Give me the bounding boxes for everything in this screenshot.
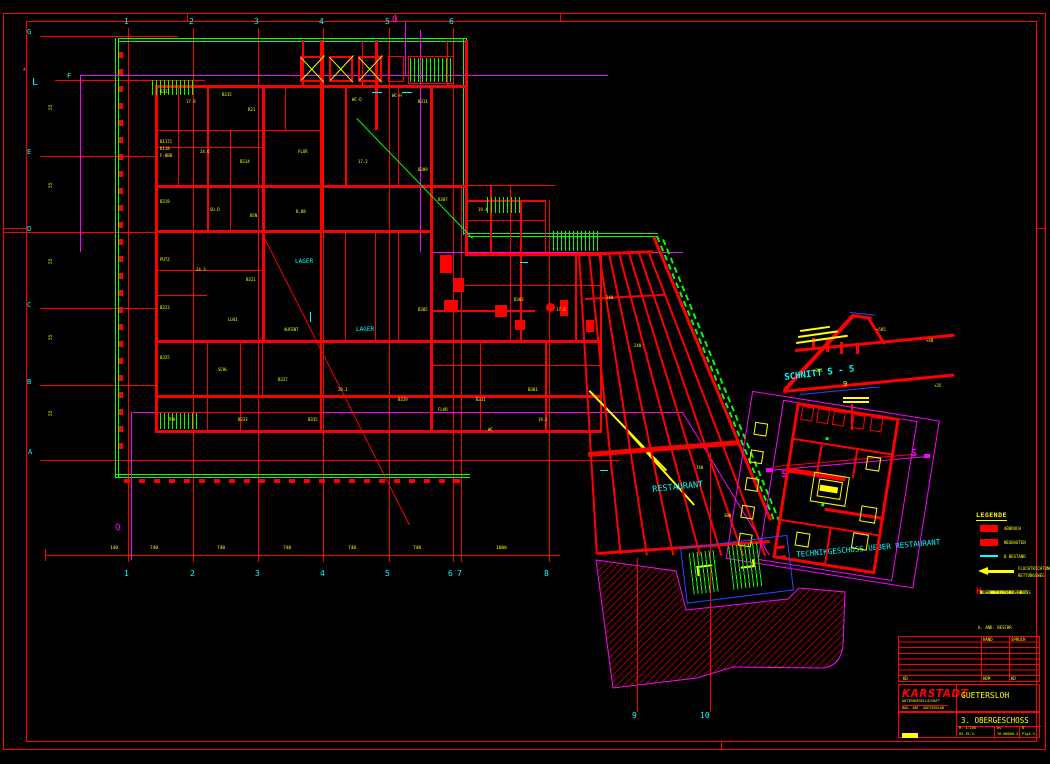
wall-segment bbox=[40, 385, 155, 386]
outline-box bbox=[388, 56, 404, 82]
boundary-tick bbox=[119, 273, 123, 279]
outline-box bbox=[753, 422, 768, 437]
drawing-label: B335 bbox=[308, 418, 318, 422]
boundary-tick bbox=[119, 103, 123, 109]
wall-segment bbox=[155, 85, 465, 88]
wall-segment bbox=[285, 85, 286, 130]
wall-segment bbox=[207, 85, 209, 230]
drawing-scale: M. 1:100 bbox=[959, 727, 976, 731]
wall-segment bbox=[193, 548, 194, 562]
boundary-tick bbox=[334, 479, 340, 483]
drawing-label: C bbox=[27, 302, 31, 309]
outline-box bbox=[865, 456, 881, 472]
boundary-tick bbox=[169, 479, 175, 483]
drawing-label: B301 bbox=[528, 388, 538, 392]
drawing-label: B323 bbox=[160, 306, 170, 310]
wall-segment bbox=[453, 548, 454, 562]
drawing-label: LAGER bbox=[295, 259, 313, 265]
boundary-tick bbox=[349, 479, 355, 483]
wall-segment bbox=[128, 28, 129, 555]
wall-segment bbox=[465, 220, 545, 221]
wall-segment bbox=[40, 36, 178, 37]
boundary-tick bbox=[304, 479, 310, 483]
drawing-label: WC bbox=[488, 428, 493, 432]
wall-segment bbox=[187, 13, 188, 21]
drawing-label: D bbox=[27, 226, 31, 233]
drawing-label: 2 bbox=[189, 18, 194, 26]
drawing-label: TRH bbox=[168, 418, 175, 422]
drawing-label: ▲ bbox=[23, 67, 26, 72]
drawing-label: 1000 bbox=[496, 547, 507, 552]
wall-segment bbox=[118, 41, 466, 42]
boundary-tick bbox=[364, 479, 370, 483]
wall-segment bbox=[45, 555, 560, 556]
wall-segment bbox=[465, 185, 555, 186]
drawing-label: 740 bbox=[413, 547, 421, 552]
rev-b1: KD bbox=[903, 677, 908, 681]
drawing-label: G bbox=[27, 29, 31, 36]
boundary-tick bbox=[424, 479, 430, 483]
drawing-label: FLUR bbox=[298, 150, 308, 154]
boundary-tick bbox=[119, 69, 123, 75]
wall-segment bbox=[821, 503, 824, 506]
drawing-no-1: 03-76-3. bbox=[959, 733, 976, 737]
boundary-tick bbox=[119, 52, 123, 58]
drawing-label: 19.4 bbox=[478, 208, 488, 212]
wall-segment bbox=[389, 28, 390, 555]
wall-segment bbox=[262, 340, 263, 395]
boundary-tick bbox=[119, 392, 123, 398]
wall-segment bbox=[155, 340, 602, 343]
drawing-label: FLUR bbox=[438, 408, 448, 412]
project-title: 3. OBERGESCHOSS bbox=[961, 716, 1029, 725]
wall-segment bbox=[389, 548, 390, 562]
drawing-label: SU.D bbox=[210, 208, 220, 212]
drawing-label: 3 bbox=[255, 570, 260, 578]
boundary-tick bbox=[214, 479, 220, 483]
drawing-label: BSN bbox=[250, 214, 257, 218]
outline-box bbox=[852, 414, 866, 430]
rev-b3: KD bbox=[1011, 677, 1016, 681]
boundary-tick bbox=[119, 307, 123, 313]
wall-segment bbox=[258, 548, 259, 562]
drawing-label: 740 bbox=[150, 547, 158, 552]
wall-segment bbox=[721, 742, 722, 750]
drawing-label: WC-D bbox=[352, 98, 362, 102]
wall-segment bbox=[465, 40, 468, 255]
boundary-tick bbox=[119, 358, 123, 364]
revision-table: HAND SPRUCH KD HDM KD bbox=[898, 636, 1040, 682]
stair-hatch bbox=[689, 550, 720, 595]
wall-segment bbox=[155, 130, 320, 131]
boundary-tick bbox=[379, 479, 385, 483]
legend-swatch-label: NEUBAUTEN bbox=[1004, 540, 1026, 545]
drawing-label: 140 bbox=[110, 547, 118, 552]
wall-segment bbox=[323, 28, 324, 555]
drawing-no-2: 76-00000-3. bbox=[997, 733, 1020, 737]
drawing-label: B319 bbox=[160, 200, 170, 204]
wall-segment bbox=[586, 320, 594, 332]
legend-swatch-row: ABBRUCH bbox=[976, 523, 1048, 535]
wall-segment bbox=[520, 262, 528, 263]
cad-drawing-canvas[interactable]: 123456Q12345678Q910GFEDCBAL▲140740740740… bbox=[0, 0, 1050, 764]
wall-segment bbox=[454, 278, 464, 292]
drawing-label: 24.3 bbox=[196, 268, 206, 272]
boundary-tick bbox=[119, 426, 123, 432]
drawing-label: B329 bbox=[398, 398, 408, 402]
boundary-tick bbox=[119, 239, 123, 245]
drawing-label: 3 bbox=[254, 18, 259, 26]
wall-segment bbox=[398, 230, 399, 342]
wall-segment bbox=[545, 200, 546, 255]
boundary-tick bbox=[119, 120, 123, 126]
project-city: GUETERSLOH bbox=[961, 691, 1009, 700]
drawing-label: 19.2 bbox=[538, 418, 548, 422]
drawing-label: B307 bbox=[438, 198, 448, 202]
drawing-label: B314 bbox=[240, 160, 250, 164]
wall-segment bbox=[430, 85, 433, 430]
drawing-label: 740 bbox=[217, 547, 225, 552]
wall-segment bbox=[80, 75, 81, 252]
legend-swatch-row: B BESTAND bbox=[976, 551, 1048, 563]
wall-segment bbox=[1037, 228, 1046, 229]
drawing-label: B.08 bbox=[296, 210, 306, 214]
drawing-label: B325 bbox=[160, 356, 170, 360]
outline-box bbox=[740, 505, 755, 520]
boundary-tick bbox=[274, 479, 280, 483]
cell-divider bbox=[994, 726, 995, 739]
drawing-label: 5 bbox=[385, 18, 390, 26]
rev-col2: SPRUCH bbox=[1011, 638, 1025, 642]
drawing-label: 1 bbox=[124, 570, 129, 578]
stair-hatch bbox=[160, 413, 198, 429]
drawing-label: B bbox=[27, 379, 31, 386]
wall-segment bbox=[40, 156, 155, 157]
diagonal-line bbox=[843, 401, 869, 403]
wall-segment bbox=[463, 38, 464, 235]
boundary-tick bbox=[454, 479, 460, 483]
drawing-label: +40 bbox=[926, 339, 933, 343]
legend-swatch bbox=[980, 555, 998, 557]
drawing-label: LAGER bbox=[356, 327, 374, 333]
drawing-label: 55 bbox=[50, 105, 55, 110]
legend-swatch bbox=[980, 539, 998, 546]
boundary-tick bbox=[184, 479, 190, 483]
wall-segment bbox=[430, 365, 602, 366]
wall-segment bbox=[155, 270, 262, 271]
wall-segment bbox=[155, 185, 465, 188]
drawing-label: 380 bbox=[724, 514, 731, 518]
company-sub: AKTIENGESELLSCHAFT bbox=[902, 700, 940, 704]
legend-arrow-label1: FLUCHTRICHTUNG bbox=[1018, 566, 1050, 571]
stair-hatch bbox=[553, 231, 601, 251]
wall-segment bbox=[155, 395, 602, 398]
drawing-label: B1171 bbox=[160, 140, 172, 144]
wall-segment bbox=[115, 38, 116, 477]
title-block: A. AND. BESCHR HAND SPRUCH KD HDM KD KAR… bbox=[898, 626, 1042, 738]
drawing-label: WC-H bbox=[392, 94, 402, 98]
boundary-tick bbox=[439, 479, 445, 483]
drawing-label: L bbox=[32, 78, 38, 88]
wall-segment bbox=[440, 255, 452, 273]
column-dot bbox=[546, 303, 555, 312]
wall-segment bbox=[118, 38, 466, 39]
drawing-label: 8 bbox=[544, 570, 549, 578]
legend-title: LEGENDE bbox=[976, 511, 1007, 521]
drawing-label: 55 bbox=[50, 335, 55, 340]
wall-segment bbox=[461, 548, 462, 562]
wall-segment bbox=[258, 28, 259, 555]
stair-hatch bbox=[152, 80, 194, 95]
rev-col1: HAND bbox=[983, 638, 993, 642]
field-2: ds bbox=[997, 727, 1001, 731]
wall-segment bbox=[405, 22, 406, 75]
drawing-label: B333 bbox=[238, 418, 248, 422]
boundary-tick bbox=[139, 479, 145, 483]
wall-segment bbox=[193, 28, 194, 555]
wall-segment bbox=[115, 474, 470, 475]
boundary-tick bbox=[119, 443, 123, 449]
boundary-tick bbox=[119, 375, 123, 381]
boundary-tick bbox=[119, 154, 123, 160]
boundary-tick bbox=[124, 479, 130, 483]
boundary-tick bbox=[119, 137, 123, 143]
legend-arrow-label2: RETTUNGSWEG bbox=[1018, 573, 1045, 578]
drawing-label: 740 bbox=[283, 547, 291, 552]
drawing-label: 17.6 bbox=[556, 308, 566, 312]
wall-segment bbox=[461, 185, 462, 555]
stamp-mark bbox=[902, 733, 918, 738]
wall-segment bbox=[402, 92, 412, 93]
escape-arrow-bar bbox=[988, 570, 1014, 573]
boundary-tick bbox=[394, 479, 400, 483]
drawing-label: R21 bbox=[248, 108, 255, 112]
drawing-label: +35 bbox=[934, 384, 941, 388]
wall-segment bbox=[128, 548, 129, 562]
drawing-label: 5 bbox=[385, 570, 390, 578]
wall-segment bbox=[207, 340, 208, 432]
drawing-label: B311 bbox=[418, 100, 428, 104]
outline-box bbox=[816, 408, 830, 424]
boundary-tick bbox=[244, 479, 250, 483]
legend-swatch-label: B BESTAND bbox=[1004, 554, 1026, 559]
wall-segment bbox=[155, 295, 207, 296]
boundary-tick bbox=[119, 256, 123, 262]
drawing-label: 28.1 bbox=[338, 388, 348, 392]
drawing-label: 55 bbox=[50, 411, 55, 416]
wall-segment bbox=[430, 310, 535, 312]
rev-b2: HDM bbox=[983, 677, 990, 681]
drawing-label: 7 bbox=[457, 570, 462, 578]
wall-segment bbox=[310, 312, 311, 322]
wall-segment bbox=[262, 85, 265, 340]
wall-segment bbox=[549, 548, 550, 562]
drawing-label: B317 bbox=[160, 90, 170, 94]
outline-box bbox=[749, 449, 764, 464]
outline-box bbox=[745, 477, 760, 492]
drawing-label: LU41 bbox=[228, 318, 238, 322]
boundary-tick bbox=[289, 479, 295, 483]
wall-segment bbox=[155, 230, 433, 233]
boundary-tick bbox=[119, 222, 123, 228]
wall-segment bbox=[575, 253, 577, 343]
drawing-label: 17.9 bbox=[186, 100, 196, 104]
drawing-label: Q bbox=[392, 16, 397, 25]
legend-swatch bbox=[980, 525, 998, 532]
cell-divider bbox=[956, 713, 957, 737]
boundary-tick bbox=[409, 479, 415, 483]
drawing-label: Q bbox=[115, 524, 120, 533]
diagonal-line bbox=[843, 397, 869, 399]
drawing-label: 55 bbox=[50, 183, 55, 188]
drawing-label: B321 bbox=[246, 278, 256, 282]
drawing-label: 740 bbox=[348, 547, 356, 552]
drawing-label: 4 bbox=[319, 18, 324, 26]
drawing-label: B327 bbox=[278, 378, 288, 382]
boundary-tick bbox=[229, 479, 235, 483]
drawing-label: 6 bbox=[449, 18, 454, 26]
table-divider bbox=[1009, 637, 1010, 681]
drawing-label: 6 bbox=[448, 570, 453, 578]
boundary-tick bbox=[259, 479, 265, 483]
drawing-label: PUTZ bbox=[160, 258, 170, 262]
stair-hatch bbox=[487, 197, 523, 213]
company-dept: BAU- ABT. GUETERSLOH bbox=[902, 707, 944, 711]
boundary-tick bbox=[119, 290, 123, 296]
drawing-label: 240 bbox=[606, 296, 613, 300]
stair-hatch bbox=[410, 58, 452, 82]
drawing-label: F-BBB bbox=[160, 154, 172, 158]
stair-hatch bbox=[728, 542, 763, 589]
wall-segment bbox=[520, 200, 522, 340]
drawing-label: D118 bbox=[160, 147, 170, 151]
drawing-label: 17.2 bbox=[358, 160, 368, 164]
drawing-label: E bbox=[27, 149, 31, 156]
drawing-label: B315 bbox=[222, 93, 232, 97]
boundary-tick bbox=[119, 205, 123, 211]
wall-segment bbox=[155, 147, 262, 148]
wall-segment bbox=[480, 340, 481, 432]
wall-segment bbox=[131, 518, 132, 560]
drawing-label: B305 bbox=[418, 308, 428, 312]
drawing-no-3: Plg3-3. bbox=[1022, 733, 1037, 737]
wall-segment bbox=[637, 558, 638, 712]
drawing-label: 4 bbox=[320, 570, 325, 578]
drawing-label: SCHL bbox=[218, 368, 228, 372]
legend-swatches: ABBRUCHNEUBAUTENB BESTAND bbox=[976, 523, 1048, 563]
legend-swatch-label: ABBRUCH bbox=[1004, 526, 1021, 531]
wall-segment bbox=[230, 130, 231, 230]
outline-box bbox=[859, 505, 877, 523]
wall-segment bbox=[155, 85, 158, 430]
boundary-tick bbox=[119, 324, 123, 330]
wall-segment bbox=[323, 548, 324, 562]
boundary-tick bbox=[119, 86, 123, 92]
legend-panel: LEGENDE ABBRUCHNEUBAUTENB BESTAND FLUCHT… bbox=[976, 502, 1048, 581]
drawing-label: B309 bbox=[418, 168, 428, 172]
wall-segment bbox=[3, 228, 26, 229]
outline-box bbox=[851, 532, 869, 550]
wall-segment bbox=[825, 437, 828, 440]
wall-segment bbox=[560, 13, 561, 21]
wall-segment bbox=[45, 549, 46, 561]
outline-box bbox=[795, 532, 811, 548]
drawing-label: 10 bbox=[700, 712, 710, 720]
drawing-label: 55 bbox=[50, 259, 55, 264]
wall-segment bbox=[444, 300, 458, 310]
legend-swatch-row: NEUBAUTEN bbox=[976, 537, 1048, 549]
drawing-label: 1 bbox=[124, 18, 129, 26]
outline-box bbox=[869, 417, 883, 433]
wall-segment bbox=[600, 470, 608, 471]
company-cell: KARSTADT AKTIENGESELLSCHAFT BAU- ABT. GU… bbox=[898, 684, 1040, 712]
wall-segment bbox=[398, 85, 399, 185]
boundary-tick bbox=[319, 479, 325, 483]
drawing-label: AUFENT bbox=[284, 328, 298, 332]
wall-segment bbox=[40, 308, 155, 309]
wall-segment bbox=[155, 430, 602, 433]
drawing-label: 240 bbox=[634, 344, 641, 348]
escape-arrow-icon bbox=[978, 567, 988, 575]
boundary-tick bbox=[154, 479, 160, 483]
wall-segment bbox=[178, 85, 179, 185]
drawing-label: 2 bbox=[190, 570, 195, 578]
drawing-label: F bbox=[67, 73, 71, 80]
wall-segment bbox=[495, 305, 507, 317]
project-cell: 3. OBERGESCHOSS M. 1:100 ds B 03-76-3. 7… bbox=[898, 712, 1040, 738]
boundary-tick bbox=[199, 479, 205, 483]
wall-segment bbox=[320, 230, 322, 432]
boundary-tick bbox=[119, 171, 123, 177]
drawing-label: 9 bbox=[632, 712, 637, 720]
wall-segment bbox=[490, 185, 492, 253]
wall-segment bbox=[40, 460, 620, 461]
drawing-label: +285 bbox=[813, 369, 823, 373]
wall-segment bbox=[372, 92, 382, 93]
boundary-tick bbox=[119, 409, 123, 415]
revision-note: A. AND. BESCHR bbox=[978, 626, 1012, 630]
wall-segment bbox=[115, 477, 470, 478]
boundary-tick bbox=[119, 341, 123, 347]
wall-segment bbox=[515, 320, 525, 330]
field-3: B bbox=[1022, 727, 1024, 731]
outline-box bbox=[832, 411, 846, 427]
table-divider bbox=[981, 637, 982, 681]
legend-arrow-row: FLUCHTRICHTUNG RETTUNGSWEG bbox=[976, 565, 1048, 581]
drawing-label: B303 bbox=[514, 298, 524, 302]
drawing-label: B331 bbox=[476, 398, 486, 402]
terrace-stairs bbox=[680, 548, 681, 549]
wall-segment bbox=[345, 85, 347, 185]
outline-box bbox=[800, 406, 814, 422]
wall-segment bbox=[375, 230, 376, 342]
tech-plan bbox=[797, 402, 798, 403]
drawing-label: 9 bbox=[843, 381, 847, 388]
drawing-label: 740 bbox=[696, 466, 703, 470]
boundary-tick bbox=[119, 188, 123, 194]
drawing-label: +585 bbox=[876, 328, 886, 332]
wall-segment bbox=[345, 230, 346, 342]
drawing-label: 24.6 bbox=[200, 150, 210, 154]
legend-item: KR = KALT ROHR bbox=[976, 590, 1014, 595]
drawing-label: A bbox=[28, 449, 32, 456]
